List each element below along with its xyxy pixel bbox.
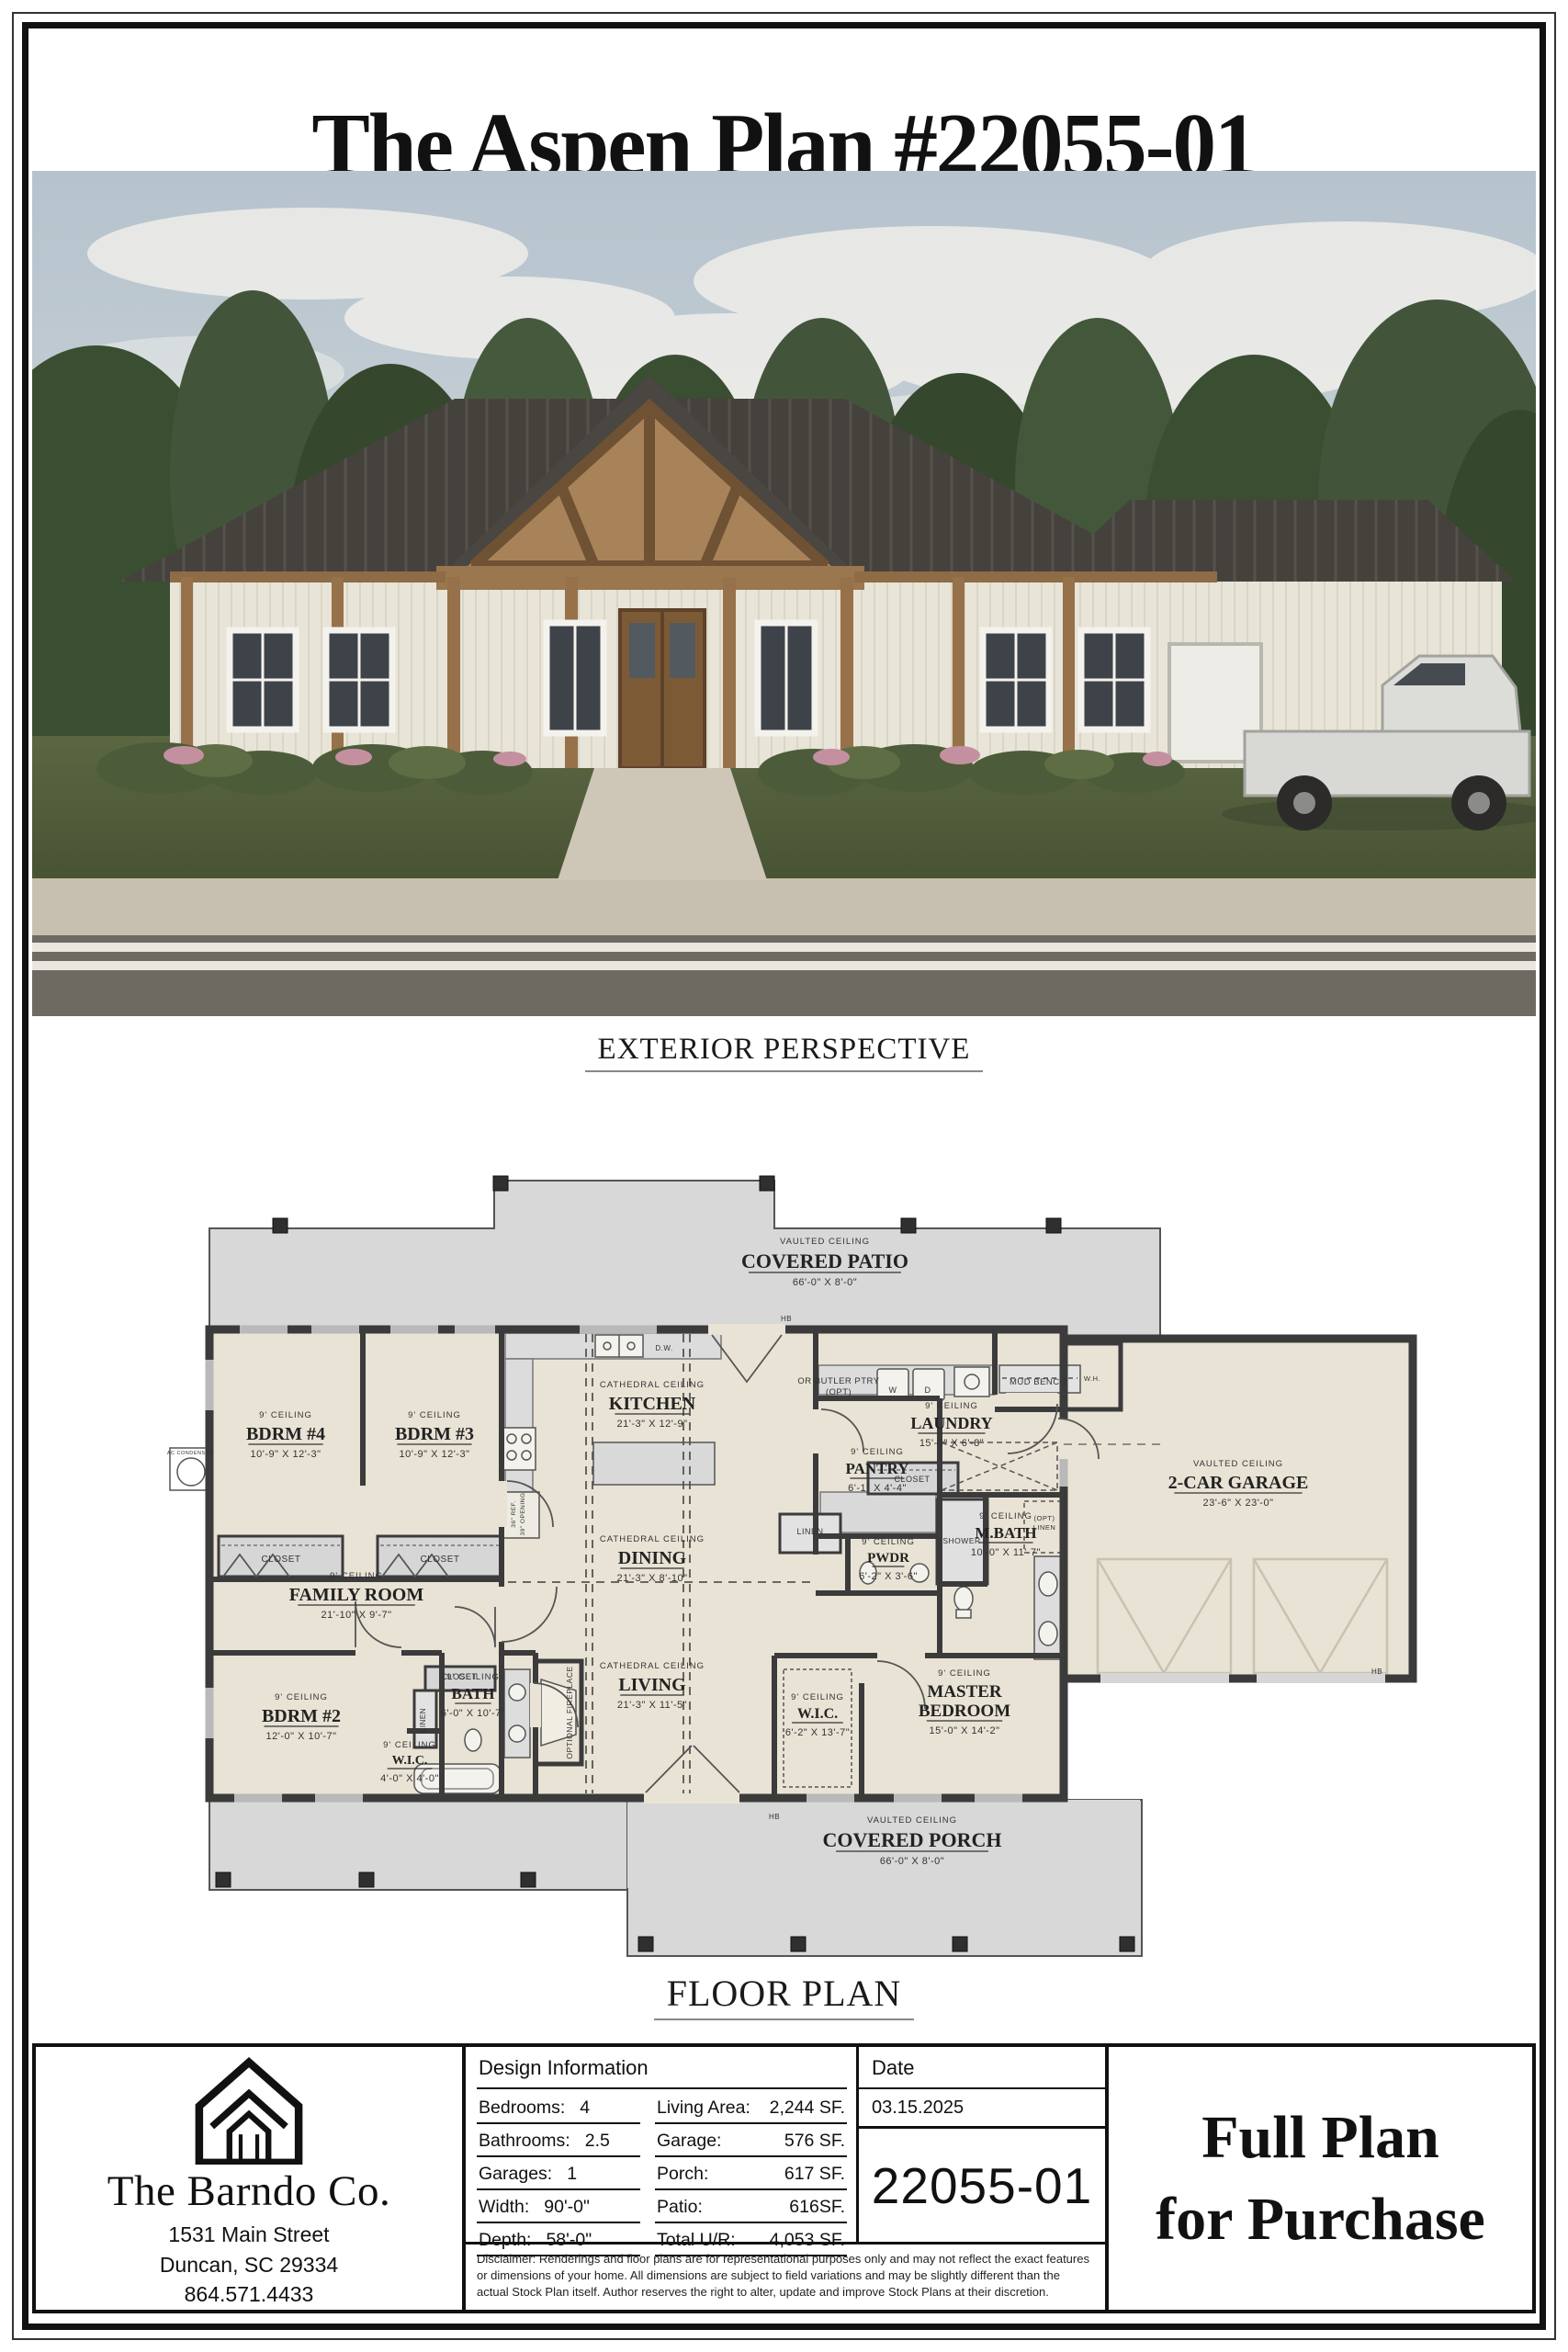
svg-text:HB: HB [781,1315,792,1323]
svg-text:PWDR: PWDR [867,1551,909,1566]
company-name: The Barndo Co. [107,2166,391,2216]
svg-text:CATHEDRAL CEILING: CATHEDRAL CEILING [600,1661,705,1671]
svg-text:21'-10" X 9'-7": 21'-10" X 9'-7" [321,1610,392,1621]
svg-text:BDRM #3: BDRM #3 [395,1424,474,1444]
svg-text:W.I.C.: W.I.C. [797,1706,838,1722]
company-city: Duncan, SC 29334 [160,2250,338,2280]
svg-text:9' CEILING: 9' CEILING [330,1571,383,1581]
front-door [620,610,705,768]
svg-text:FAMILY ROOM: FAMILY ROOM [289,1585,424,1605]
svg-text:OR BUTLER PTRY: OR BUTLER PTRY [797,1376,879,1386]
svg-text:SHOWER: SHOWER [942,1536,980,1545]
svg-text:9' CEILING: 9' CEILING [925,1401,978,1411]
road-line-2 [32,961,1536,970]
svg-text:4'-0" X 4'-0": 4'-0" X 4'-0" [380,1773,439,1784]
svg-text:39" OPENING: 39" OPENING [520,1493,526,1536]
svg-text:21'-3" X 8'-10": 21'-3" X 8'-10" [617,1573,688,1584]
svg-text:LINEN: LINEN [796,1527,823,1536]
plan-number: 22055-01 [859,2129,1105,2242]
svg-text:M.BATH: M.BATH [975,1524,1036,1542]
barndo-logo-icon [157,2052,341,2165]
svg-text:CLOSET: CLOSET [261,1555,300,1565]
garage-floor [1064,1339,1413,1679]
exterior-caption: EXTERIOR PERSPECTIVE [0,1033,1568,1072]
purchase-banner-line2: for Purchase [1156,2178,1485,2260]
svg-text:66'-0" X 8'-0": 66'-0" X 8'-0" [793,1277,857,1288]
svg-text:9' CEILING: 9' CEILING [862,1537,915,1547]
svg-text:9' CEILING: 9' CEILING [851,1447,904,1457]
company-address: 1531 Main Street Duncan, SC 29334 864.57… [160,2220,338,2310]
company-phone: 864.571.4433 [160,2279,338,2310]
purchase-banner-line1: Full Plan [1156,2097,1485,2178]
svg-text:VAULTED CEILING: VAULTED CEILING [867,1815,957,1826]
svg-text:HB: HB [1371,1668,1382,1676]
svg-text:LIVING: LIVING [618,1675,686,1695]
design-info-block: Design Information Bedrooms:4Living Area… [466,2047,1109,2310]
svg-text:BATH: BATH [452,1685,495,1702]
disclaimer-text: Disclaimer: Renderings and floor plans a… [466,2242,1105,2310]
svg-text:BDRM #4: BDRM #4 [246,1424,325,1444]
svg-text:OPTIONAL FIREPLACE: OPTIONAL FIREPLACE [565,1666,574,1758]
svg-text:15'-0" X 14'-2": 15'-0" X 14'-2" [930,1725,1000,1736]
svg-text:LINEN: LINEN [419,1708,427,1732]
svg-text:9' CEILING: 9' CEILING [791,1692,844,1702]
design-info-heading: Design Information [477,2052,847,2089]
svg-text:W: W [889,1385,897,1395]
design-info-column: Design Information Bedrooms:4Living Area… [466,2047,859,2242]
porch-beam-center [436,566,864,590]
svg-text:2-CAR GARAGE: 2-CAR GARAGE [1168,1473,1309,1493]
svg-text:D.W.: D.W. [655,1344,672,1352]
floorplan-caption: FLOOR PLAN [0,1972,1568,2020]
svg-text:W.H.: W.H. [1084,1374,1100,1383]
sidewalk [32,878,1536,935]
svg-text:COVERED PORCH: COVERED PORCH [823,1828,1002,1851]
design-info-row: Bathrooms:2.5Garage:576 SF. [477,2124,847,2157]
svg-text:9' CEILING: 9' CEILING [938,1668,991,1679]
svg-text:MUD BENCH: MUD BENCH [1010,1377,1066,1387]
svg-text:D: D [925,1385,931,1395]
svg-text:CATHEDRAL CEILING: CATHEDRAL CEILING [600,1380,705,1390]
company-street: 1531 Main Street [160,2220,338,2250]
front-walkway [558,768,767,880]
date-label: Date [859,2047,1105,2089]
svg-text:6'-1" X 4'-4": 6'-1" X 4'-4" [848,1483,907,1494]
svg-text:MASTER: MASTER [927,1682,1002,1702]
svg-text:BEDROOM: BEDROOM [919,1702,1010,1721]
svg-text:CATHEDRAL CEILING: CATHEDRAL CEILING [600,1534,705,1544]
svg-text:36" REF.: 36" REF. [511,1500,517,1527]
svg-text:VAULTED CEILING: VAULTED CEILING [1193,1459,1283,1469]
svg-text:LINEN: LINEN [1033,1523,1056,1532]
design-info-rows: Bedrooms:4Living Area:2,244 SF.Bathrooms… [477,2091,847,2256]
company-block: The Barndo Co. 1531 Main Street Duncan, … [36,2047,466,2310]
porch-beam-left [170,571,446,582]
svg-text:VAULTED CEILING: VAULTED CEILING [780,1237,870,1247]
purchase-banner: Full Plan for Purchase [1109,2047,1532,2310]
road-line-1 [32,943,1536,952]
svg-text:W.I.C.: W.I.C. [392,1754,428,1768]
svg-text:BDRM #2: BDRM #2 [262,1706,341,1726]
design-info-row: Bedrooms:4Living Area:2,244 SF. [477,2091,847,2124]
svg-text:9' CEILING: 9' CEILING [383,1740,436,1750]
design-info-row: Garages:1Porch:617 SF. [477,2157,847,2190]
plan-sheet: The Aspen Plan #22055-01 [0,0,1568,2352]
svg-text:66'-0" X 8'-0": 66'-0" X 8'-0" [880,1856,944,1867]
svg-text:9' CEILING: 9' CEILING [979,1511,1032,1521]
svg-text:15'-0" X 6'-8": 15'-0" X 6'-8" [919,1438,984,1449]
exterior-rendering-scene [32,171,1536,1016]
svg-text:9' CEILING: 9' CEILING [408,1410,461,1420]
svg-text:CLOSET: CLOSET [441,1672,477,1681]
svg-text:10'-0" X 11'-7": 10'-0" X 11'-7" [971,1547,1041,1558]
svg-text:10'-9" X 12'-3": 10'-9" X 12'-3" [251,1449,321,1460]
svg-text:HB: HB [769,1813,780,1821]
svg-text:6'-0" X 10'-7": 6'-0" X 10'-7" [441,1708,505,1719]
svg-text:9' CEILING: 9' CEILING [259,1410,312,1420]
floor-plan: VAULTED CEILINGCOVERED PATIO66'-0" X 8'-… [131,1169,1436,1964]
svg-text:LAUNDRY: LAUNDRY [910,1414,992,1432]
floor-plan-drawing: VAULTED CEILINGCOVERED PATIO66'-0" X 8'-… [131,1169,1436,1964]
exterior-rendering [32,171,1536,1016]
svg-text:DINING: DINING [618,1548,687,1568]
svg-text:CLOSET: CLOSET [420,1555,459,1565]
svg-text:6'-2" X 3'-6": 6'-2" X 3'-6" [859,1571,918,1582]
svg-text:12'-0" X 10'-7": 12'-0" X 10'-7" [266,1731,337,1742]
svg-text:(OPT): (OPT) [826,1387,852,1397]
svg-text:10'-9" X 12'-3": 10'-9" X 12'-3" [400,1449,470,1460]
porch-beam-right [854,571,1217,582]
svg-text:9' CEILING: 9' CEILING [275,1692,328,1702]
svg-text:AC CONDENSER: AC CONDENSER [167,1451,213,1456]
svg-text:COVERED PATIO: COVERED PATIO [741,1249,908,1272]
covered-patio-slab [209,1181,1160,1339]
design-info-row: Width:90'-0"Patio:616SF. [477,2190,847,2223]
svg-text:23'-6" X 23'-0": 23'-6" X 23'-0" [1203,1498,1274,1509]
svg-text:CLOSET: CLOSET [894,1475,930,1484]
svg-text:KITCHEN: KITCHEN [609,1394,696,1414]
svg-text:21'-3" X 12'-9": 21'-3" X 12'-9" [617,1419,688,1430]
svg-text:21'-3" X 11'-5": 21'-3" X 11'-5" [617,1700,687,1711]
svg-text:6'-2" X 13'-7": 6'-2" X 13'-7" [785,1727,850,1738]
svg-text:(OPT): (OPT) [1034,1514,1055,1522]
date-value: 03.15.2025 [859,2089,1105,2129]
date-column: Date 03.15.2025 22055-01 [859,2047,1105,2242]
title-block: The Barndo Co. 1531 Main Street Duncan, … [32,2043,1536,2313]
